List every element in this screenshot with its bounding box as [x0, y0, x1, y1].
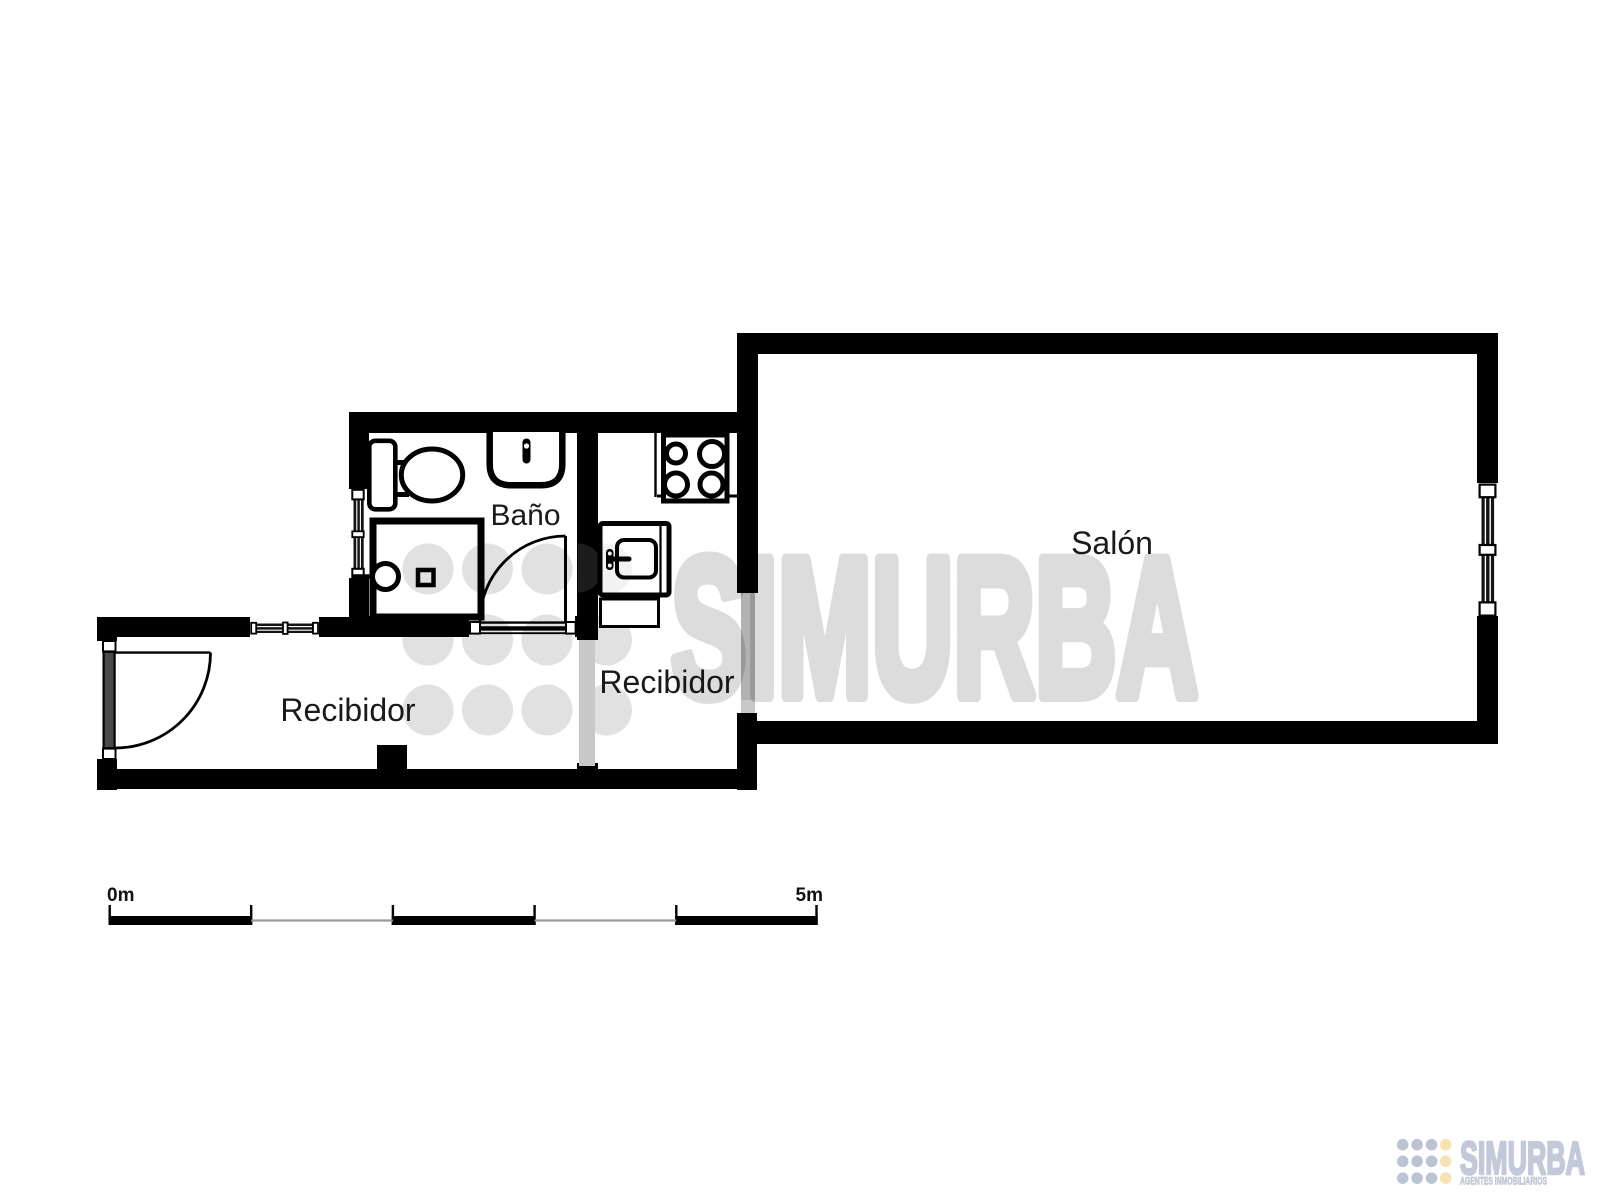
svg-text:AGENTES INMOBILIARIOS: AGENTES INMOBILIARIOS — [1460, 1176, 1547, 1188]
